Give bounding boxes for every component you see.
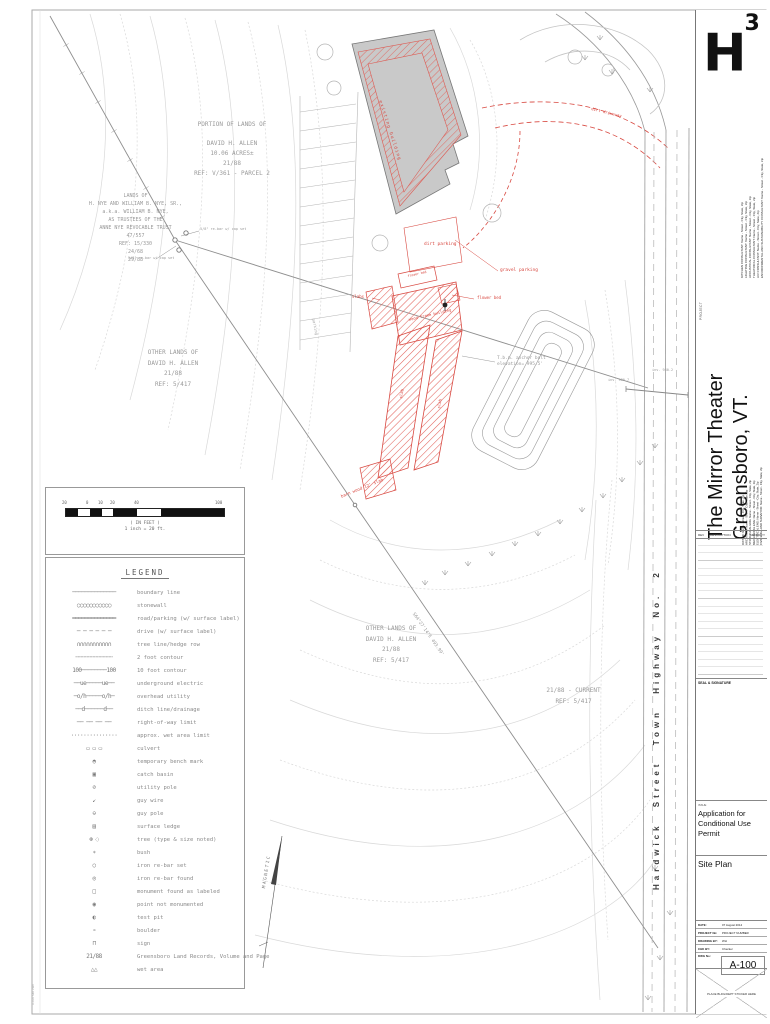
legend-row: ∩∩∩∩∩∩∩∩∩∩∩ tree line/hedge row <box>46 638 244 651</box>
legend-symbol: ▭ ▭ ▭ <box>51 745 137 752</box>
legend-symbol: ────────────── <box>51 589 137 596</box>
legend-symbol: ══════════════ <box>51 615 137 622</box>
legend-label: road/parking (w/ surface label) <box>137 616 240 622</box>
sticker-text: PLACE BLDG/DEPT STICKER HERE <box>705 991 758 997</box>
legend-label: drive (w/ surface label) <box>137 629 216 635</box>
note-line: 10.06 ACRES± <box>152 149 312 159</box>
legend-label: utility pole <box>137 785 177 791</box>
scale-segment <box>90 509 102 516</box>
legend-label: monument found as labeled <box>137 889 220 895</box>
scale-segment <box>102 509 114 516</box>
note-line: 21/88 <box>336 645 446 656</box>
legend-row: ▭ ▭ ▭ culvert <box>46 742 244 755</box>
legend-label: guy pole <box>137 811 164 817</box>
legend-symbol: ▤ <box>51 823 137 830</box>
consultant-line: ENVIRONMENTAL AND SUSTAINABILITY CONSULT… <box>760 98 764 278</box>
field-label: DATE: <box>698 923 722 927</box>
slabs-label: slabs <box>352 294 364 299</box>
pin-label-b: 5/8" re-bar w/ cap set <box>128 256 174 260</box>
project-label: PROJECT <box>699 280 703 320</box>
date-col: MM/DD/YY <box>750 533 765 537</box>
note-line: LANDS OF <box>58 192 213 200</box>
scale-tick: 100 <box>215 500 222 505</box>
legend-row: ○ iron re-bar set <box>46 859 244 872</box>
legend-label: iron re-bar set <box>137 863 187 869</box>
legend-row: ╌╌╌╌╌╌╌╌╌╌╌╌ 2 foot contour <box>46 651 244 664</box>
note-line: ANNE NYE REVOCABLE TRUST <box>58 224 213 232</box>
legend-label: iron re-bar found <box>137 876 193 882</box>
issue-section: ISSUE Application for Conditional Use Pe… <box>696 800 767 855</box>
legend-symbol: ∩∩∩∩∩∩∩∩∩∩∩ <box>51 641 137 648</box>
note-parcel: PORTION OF LANDS OFDAVID H. ALLEN10.06 A… <box>152 120 312 179</box>
note-line: AS TRUSTEES OF THE <box>58 216 213 224</box>
project-title-line1: The Mirror Theater <box>704 278 729 540</box>
legend-label: catch basin <box>137 772 173 778</box>
scale-tick: 20 <box>110 500 115 505</box>
note-line: REF: 5/417 <box>516 697 631 708</box>
legend-label: underground electric <box>137 681 203 687</box>
legend-symbol: ─ ─ ─ ─ ─ ─ <box>51 628 137 635</box>
existing-building-shape <box>352 30 468 214</box>
scale-caption-units: ( IN FEET ) <box>65 521 225 526</box>
sheet-title-section: Site Plan <box>696 855 767 920</box>
issue-label: ISSUE <box>698 803 765 807</box>
legend-row: ────────────── boundary line <box>46 586 244 599</box>
legend-symbol: ▣ <box>51 771 137 778</box>
legend-label: 10 foot contour <box>137 668 187 674</box>
legend-label: culvert <box>137 746 160 752</box>
highway-lines <box>520 12 689 1012</box>
legend-row: ◓ temporary bench mark <box>46 755 244 768</box>
scale-caption-ratio: 1 inch = 20 ft. <box>65 527 225 532</box>
road-name-label: Hardwick Street Town Highway No. 2 <box>652 500 661 890</box>
legend-row: ··············· approx. wet area limit <box>46 729 244 742</box>
legend-symbol: ○ <box>51 862 137 869</box>
vegetation-tufts <box>422 35 673 1000</box>
scale-tick: 10 <box>98 500 103 505</box>
note-line: 24/68 <box>58 248 213 256</box>
legend-row: ∗ bush <box>46 846 244 859</box>
legend-symbol: ◉ <box>51 901 137 908</box>
scale-segment <box>137 509 161 516</box>
dirt-parking-label: dirt parking <box>424 242 457 247</box>
legend-label: Greensboro Land Records, Volume and Page <box>137 954 269 960</box>
legend-symbol: ↙ <box>51 797 137 804</box>
legend-label: guy wire <box>137 798 164 804</box>
legend-symbol: ⊛ ◌ <box>51 836 137 843</box>
legend-row: ⊖ guy pole <box>46 807 244 820</box>
legend-row: ○○○○○○○○○○○ stonewall <box>46 599 244 612</box>
note-lands: LANDS OFH. NYE AND WILLIAM B. NYE, SR.,a… <box>58 192 213 264</box>
invert-label-b: inv. 980.2 <box>652 368 673 372</box>
scale-tick: 40 <box>134 500 139 505</box>
note-line: elevation= 995.5' <box>497 362 567 368</box>
legend-row: ⊘ utility pole <box>46 781 244 794</box>
legend-symbol: ──ue─────ue── <box>51 680 137 687</box>
sheet-title: Site Plan <box>698 859 765 869</box>
legend-label: tree line/hedge row <box>137 642 200 648</box>
consultants-block: KITCHEN CONSULTANT: Name - Street - City… <box>740 98 764 278</box>
legend-row: ─o/h─────o/h─ overhead utility <box>46 690 244 703</box>
note-line: REF: 5/417 <box>118 380 228 391</box>
legend-label: ditch line/drainage <box>137 707 200 713</box>
field-row: PROJECT No: PROJECT NUMBER <box>696 929 767 937</box>
legend-symbol: 100────────100 <box>51 667 137 674</box>
pond <box>466 304 601 476</box>
legend-label: approx. wet area limit <box>137 733 210 739</box>
note-line: OTHER LANDS OF <box>118 348 228 359</box>
legend-title: LEGEND <box>46 568 244 577</box>
revision-table-rows <box>698 538 763 676</box>
field-label: DRAWING BY: <box>698 939 722 943</box>
legend-label: boundary line <box>137 590 180 596</box>
note-line: REF: 15/330 <box>58 240 213 248</box>
legend-label: 2 foot contour <box>137 655 183 661</box>
legend-symbol: ◐ <box>51 914 137 921</box>
legend-symbol: ··············· <box>51 732 137 739</box>
note-tbm: T.b.m. anchor boltelevation= 995.5' <box>497 356 567 368</box>
legend-label: overhead utility <box>137 694 190 700</box>
note-line: 21/88 <box>152 159 312 169</box>
scale-segment <box>161 509 224 516</box>
flower-bed-label-b: flower bed <box>477 295 501 300</box>
legend-row: ⊓ sign <box>46 937 244 950</box>
legend-symbol: ─o/h─────o/h─ <box>51 693 137 700</box>
legend-symbol: ⊖ <box>51 810 137 817</box>
field-row: DATE: 07 August 2014 <box>696 921 767 929</box>
scale-segment <box>113 509 137 516</box>
legend-symbol: ⊘ <box>51 784 137 791</box>
note-line: REF: V/361 - PARCEL 2 <box>152 169 312 179</box>
scale-bar <box>65 508 225 517</box>
legend-row: ▣ catch basin <box>46 768 244 781</box>
legend-row: ─ ─ ─ ─ ─ ─ drive (w/ surface label) <box>46 625 244 638</box>
legend-label: sign <box>137 941 150 947</box>
note-line: REF: 5/417 <box>336 656 446 667</box>
field-row: CHK BY: Checker <box>696 945 767 953</box>
field-value: WH <box>722 939 727 943</box>
note-line: a.k.a. WILLIAM B. NYE, <box>58 208 213 216</box>
legend-label: bush <box>137 850 150 856</box>
legend-row: 100────────100 10 foot contour <box>46 664 244 677</box>
rev-col: REV <box>698 533 710 537</box>
note-current: 21/88 - CURRENTREF: 5/417 <box>516 686 631 707</box>
scale-tick: 0 <box>86 500 88 505</box>
legend-symbol: ◓ <box>51 758 137 765</box>
note-line: H. NYE AND WILLIAM B. NYE, SR., <box>58 200 213 208</box>
legend-label: tree (type & size noted) <box>137 837 216 843</box>
field-row: DRAWING BY: WH <box>696 937 767 945</box>
legend-symbol: ○○○○○○○○○○○ <box>51 602 137 609</box>
field-value: 07 August 2014 <box>722 923 742 927</box>
field-label: CHK BY: <box>698 947 722 951</box>
field-value: Checker <box>722 947 733 951</box>
legend-label: right-of-way limit <box>137 720 197 726</box>
scale-tick: 20 <box>62 500 67 505</box>
note-line: DAVID H. ALLEN <box>152 139 312 149</box>
gravel-parking-label: gravel parking <box>500 268 538 273</box>
legend-label: temporary bench mark <box>137 759 203 765</box>
logo-superscript: 3 <box>745 11 760 36</box>
scale-bar-panel: 20 0 10 20 40 100 ( IN FEET ) 1 inch = 2… <box>45 487 245 555</box>
logo-letter: H <box>703 23 743 83</box>
legend-label: test pit <box>137 915 164 921</box>
note-line: DAVID H. ALLEN <box>118 359 228 370</box>
legend-label: point not monumented <box>137 902 203 908</box>
scale-segment <box>66 509 78 516</box>
drawing-sheet: PORTION OF LANDS OFDAVID H. ALLEN10.06 A… <box>0 0 770 1024</box>
legend-row: ── ── ── ── right-of-way limit <box>46 716 244 729</box>
titleblock-fields: DATE: 07 August 2014 PROJECT No: PROJECT… <box>696 920 767 975</box>
legend-label: boulder <box>137 928 160 934</box>
note-line: PORTION OF LANDS OF <box>152 120 312 130</box>
legend-symbol: □ <box>51 888 137 895</box>
invert-label-a: inv. 980.7 <box>608 378 629 382</box>
legend-row: ──d──────d── ditch line/drainage <box>46 703 244 716</box>
legend-row: ◉ point not monumented <box>46 898 244 911</box>
legend-row: □ monument found as labeled <box>46 885 244 898</box>
seal-label: SEAL & SIGNATURE <box>696 679 767 687</box>
legend-row: ▤ surface ledge <box>46 820 244 833</box>
legend-symbol: ∘ <box>51 927 137 934</box>
legend-list: ────────────── boundary line ○○○○○○○○○○○… <box>46 586 244 976</box>
issue-text: Application for Conditional Use Permit <box>698 809 765 839</box>
legend-symbol: 21/88 <box>51 953 137 960</box>
legend-row: ∘ boulder <box>46 924 244 937</box>
note-line: 21/88 <box>118 369 228 380</box>
legend-symbol: ∗ <box>51 849 137 856</box>
legend-row: ◎ iron re-bar found <box>46 872 244 885</box>
legend-symbol: ◎ <box>51 875 137 882</box>
field-value: PROJECT NUMBER <box>722 931 749 935</box>
legend-row: ⊛ ◌ tree (type & size noted) <box>46 833 244 846</box>
scale-ticks: 20 0 10 20 40 100 <box>65 500 225 508</box>
dwg-no-label: DWG No: <box>698 954 711 958</box>
legend-symbol: ──d──────d── <box>51 706 137 713</box>
legend-symbol: ⊓ <box>51 940 137 947</box>
title-block: H3 KITCHEN CONSULTANT: Name - Street - C… <box>695 10 767 1014</box>
legend-label: stonewall <box>137 603 167 609</box>
legend-label: wet area <box>137 967 164 973</box>
legend-label: surface ledge <box>137 824 180 830</box>
legend-panel: LEGEND ────────────── boundary line ○○○○… <box>45 557 245 989</box>
sticker-box: PLACE BLDG/DEPT STICKER HERE <box>696 968 767 1018</box>
legend-symbol: ── ── ── ── <box>51 719 137 726</box>
pin-label-a: 5/8" re-bar w/ cap set <box>200 227 246 231</box>
note-line: 21/88 - CURRENT <box>516 686 631 697</box>
seal-signature-section: SEAL & SIGNATURE <box>696 678 767 800</box>
legend-symbol: △△ <box>51 966 137 973</box>
field-label: PROJECT No: <box>698 931 722 935</box>
legend-row: ◐ test pit <box>46 911 244 924</box>
firm-logo: H3 <box>703 20 758 79</box>
legend-row: 21/88 Greensboro Land Records, Volume an… <box>46 950 244 963</box>
note-other-lands-b: OTHER LANDS OFDAVID H. ALLEN21/88REF: 5/… <box>336 624 446 666</box>
legend-row: ══════════════ road/parking (w/ surface … <box>46 612 244 625</box>
scale-segment <box>78 509 90 516</box>
legend-row: ↙ guy wire <box>46 794 244 807</box>
note-other-lands-a: OTHER LANDS OFDAVID H. ALLEN21/88REF: 5/… <box>118 348 228 390</box>
description-col: DESCRIPTION <box>710 533 750 537</box>
legend-symbol: ╌╌╌╌╌╌╌╌╌╌╌╌ <box>51 654 137 661</box>
legend-row: ──ue─────ue── underground electric <box>46 677 244 690</box>
margin-file-note: A-100 Site Plan <box>31 845 35 1005</box>
note-line: 47/557 <box>58 232 213 240</box>
legend-row: △△ wet area <box>46 963 244 976</box>
